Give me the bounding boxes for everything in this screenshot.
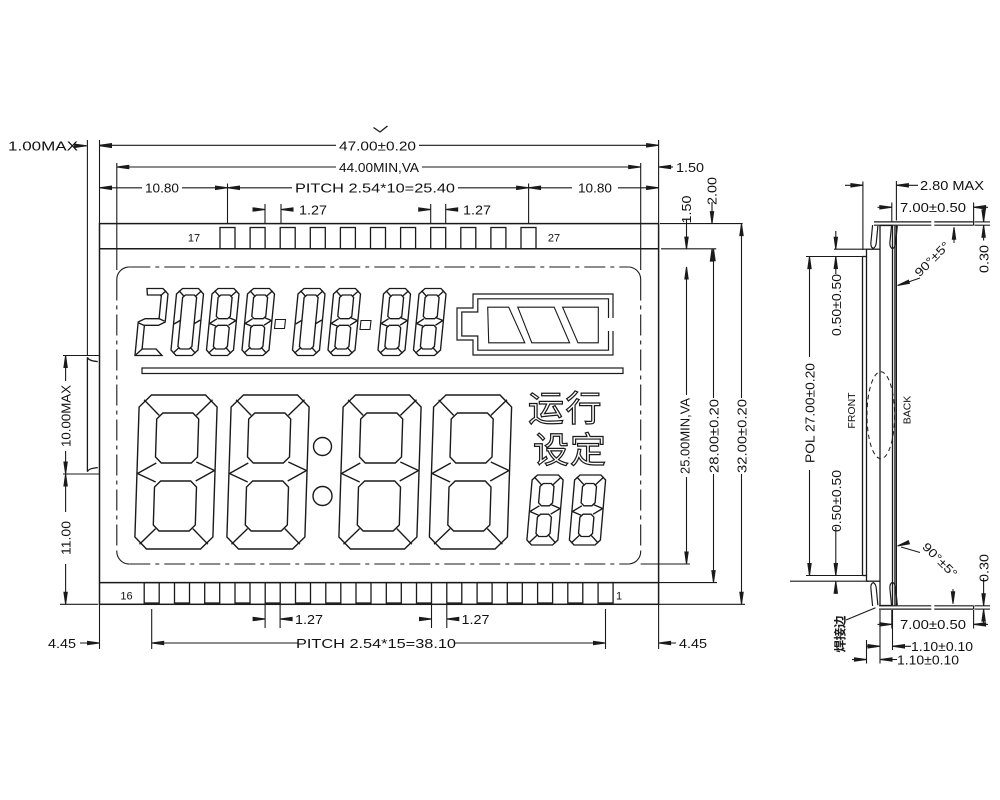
svg-text:PITCH 2.54*10=25.40: PITCH 2.54*10=25.40 xyxy=(295,181,455,196)
svg-text:11.00: 11.00 xyxy=(59,521,74,555)
svg-text:7.00±0.50: 7.00±0.50 xyxy=(900,617,966,632)
svg-text:0.30: 0.30 xyxy=(977,554,992,582)
svg-text:28.00±0.20: 28.00±0.20 xyxy=(707,399,722,473)
svg-text:FRONT: FRONT xyxy=(846,392,858,429)
svg-text:32.00±0.20: 32.00±0.20 xyxy=(735,399,750,473)
svg-text:BACK: BACK xyxy=(902,396,914,425)
svg-text:17: 17 xyxy=(188,233,200,245)
svg-text:25.00MIN,VA: 25.00MIN,VA xyxy=(678,398,693,474)
svg-text:1.50: 1.50 xyxy=(676,160,704,175)
svg-text:0.30: 0.30 xyxy=(977,245,992,273)
svg-text:1: 1 xyxy=(616,591,622,603)
svg-text:0.50±0.50: 0.50±0.50 xyxy=(829,470,844,532)
svg-text:1.10±0.10: 1.10±0.10 xyxy=(897,652,959,667)
svg-text:0.50±0.50: 0.50±0.50 xyxy=(829,274,844,336)
svg-text:47.00±0.20: 47.00±0.20 xyxy=(339,138,416,153)
svg-text:10.80: 10.80 xyxy=(145,181,179,196)
svg-text:1.27: 1.27 xyxy=(299,202,327,217)
svg-text:4.45: 4.45 xyxy=(48,636,76,651)
svg-text:4.45: 4.45 xyxy=(679,636,707,651)
svg-text:1.27: 1.27 xyxy=(462,612,490,627)
svg-text:1.00MAX: 1.00MAX xyxy=(8,138,78,153)
svg-text:27: 27 xyxy=(548,233,560,245)
svg-text:1.27: 1.27 xyxy=(295,612,323,627)
svg-text:POL 27.00±0.20: POL 27.00±0.20 xyxy=(803,363,818,463)
svg-text:16: 16 xyxy=(120,591,132,603)
svg-text:1.27: 1.27 xyxy=(463,202,491,217)
svg-text:7.00±0.50: 7.00±0.50 xyxy=(900,200,966,215)
svg-text:2.00: 2.00 xyxy=(705,177,720,205)
svg-text:2.80 MAX: 2.80 MAX xyxy=(920,178,984,193)
svg-text:10.80: 10.80 xyxy=(578,181,612,196)
svg-text:10.00MAX: 10.00MAX xyxy=(59,385,74,447)
svg-text:PITCH 2.54*15=38.10: PITCH 2.54*15=38.10 xyxy=(296,636,456,651)
svg-text:44.00MIN,VA: 44.00MIN,VA xyxy=(339,160,419,175)
